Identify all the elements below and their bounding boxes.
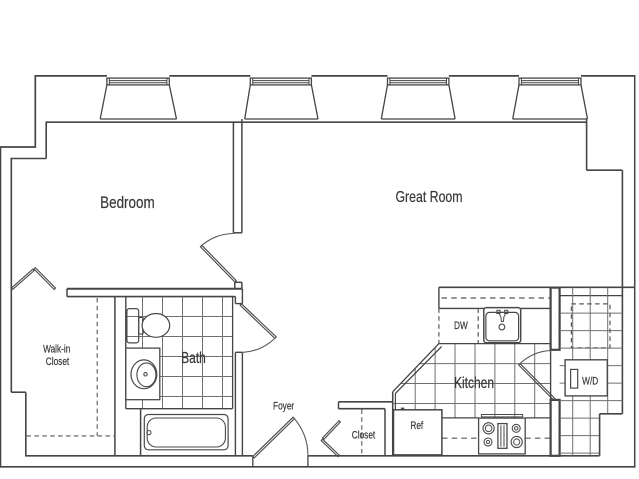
svg-text:Ref: Ref xyxy=(410,420,423,432)
svg-text:Bedroom: Bedroom xyxy=(100,194,155,213)
svg-text:Bath: Bath xyxy=(181,348,206,366)
svg-text:Closet: Closet xyxy=(352,429,376,441)
svg-text:Kitchen: Kitchen xyxy=(454,373,494,391)
svg-text:Great Room: Great Room xyxy=(395,188,462,206)
svg-text:W/D: W/D xyxy=(582,376,598,388)
svg-text:Closet: Closet xyxy=(46,356,70,368)
svg-text:DW: DW xyxy=(454,320,468,332)
svg-text:Foyer: Foyer xyxy=(273,401,294,413)
svg-text:Walk-in: Walk-in xyxy=(43,344,70,356)
